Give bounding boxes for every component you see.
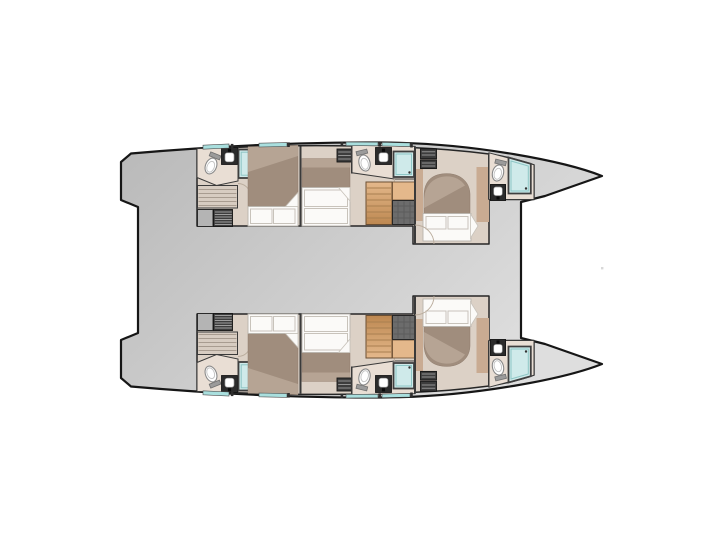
floorplan-canvas: [0, 0, 720, 540]
print-artifact-dot: [601, 267, 603, 269]
catamaran-floorplan-drawing: [0, 0, 720, 540]
